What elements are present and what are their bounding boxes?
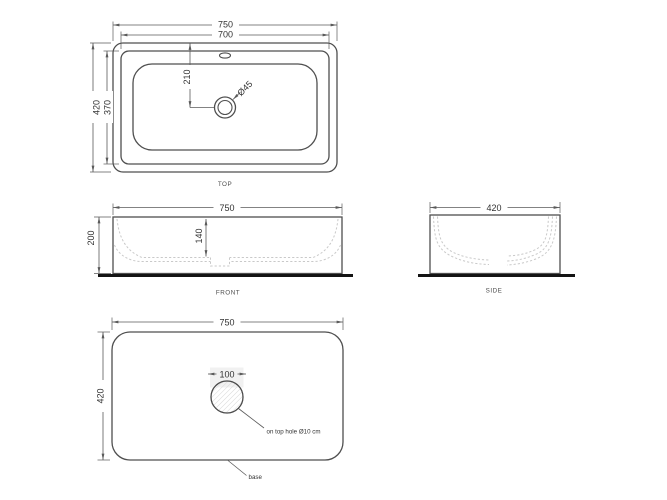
dim-text-drain-diameter: Ø45 xyxy=(235,79,254,98)
top-view: 750 700 420 370 xyxy=(90,19,337,189)
dim-front-width: 750 xyxy=(113,202,342,215)
side-hidden-profile xyxy=(434,217,557,266)
overflow-hole xyxy=(220,53,231,58)
dim-drain-diameter: Ø45 xyxy=(233,79,254,100)
drain-inner-circle xyxy=(218,101,232,115)
technical-drawing: 750 700 420 370 xyxy=(0,0,667,500)
dim-text-top-depth: 420 xyxy=(92,100,102,115)
dim-drain-offset: 210 xyxy=(182,44,214,108)
hole-note-text: on top hole Ø10 cm xyxy=(267,429,321,436)
view-label-top: TOP xyxy=(218,181,232,188)
bottom-view: 750 420 100 on top hole Ø10 cm base xyxy=(96,316,344,481)
dim-front-height: 200 xyxy=(86,217,111,274)
dim-bottom-depth: 420 xyxy=(96,332,111,460)
dim-bottom-width: 750 xyxy=(112,316,343,330)
hole-note: on top hole Ø10 cm xyxy=(239,409,321,436)
dim-text-top-rim-width: 700 xyxy=(218,30,233,40)
base-note: base xyxy=(228,461,262,482)
base-note-text: base xyxy=(249,474,263,481)
hole-note-leader xyxy=(239,409,265,429)
front-hidden-profile xyxy=(115,219,341,266)
dim-text-top-rim-depth: 370 xyxy=(103,100,113,115)
technical-drawing-canvas: 750 700 420 370 xyxy=(0,0,667,500)
dim-side-depth: 420 xyxy=(430,202,560,213)
dim-text-side-depth: 420 xyxy=(486,203,501,213)
dim-text-bottom-width: 750 xyxy=(219,318,234,328)
view-label-side: SIDE xyxy=(486,288,503,295)
front-outline xyxy=(113,217,342,274)
side-view: 420 SIDE xyxy=(418,202,575,295)
dim-top-rim-width: 700 xyxy=(121,29,329,49)
bottom-hole-circle xyxy=(211,381,243,413)
dim-text-front-inner-depth: 140 xyxy=(194,228,204,243)
view-label-front: FRONT xyxy=(216,290,240,297)
dim-top-rim-depth: 370 xyxy=(103,51,120,164)
front-view: 750 200 140 FRONT xyxy=(86,202,353,297)
top-rim-outline xyxy=(121,51,329,164)
base-note-leader xyxy=(228,461,247,476)
dim-text-front-height: 200 xyxy=(86,230,96,245)
side-outline xyxy=(430,215,560,274)
dim-text-front-width: 750 xyxy=(219,203,234,213)
dim-text-hole: 100 xyxy=(219,370,234,380)
dim-text-bottom-depth: 420 xyxy=(96,388,106,403)
dim-text-top-width: 750 xyxy=(218,20,233,30)
top-basin-outline xyxy=(133,64,317,150)
dim-text-drain-offset: 210 xyxy=(182,69,192,84)
dim-front-inner-depth: 140 xyxy=(194,219,206,257)
top-outer-outline xyxy=(113,43,337,172)
